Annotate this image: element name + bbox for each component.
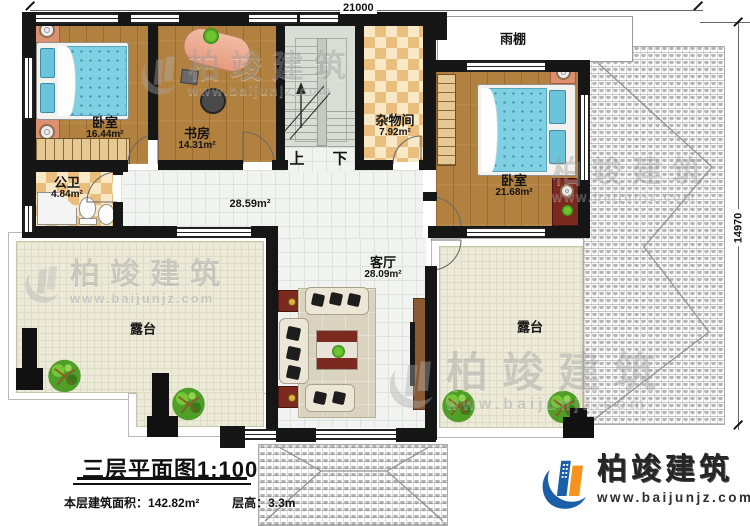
stair-treads-left-flight	[284, 44, 317, 110]
room-label-bedroom1: 卧室 16.44m²	[86, 116, 123, 140]
room-area: 7.92m²	[375, 128, 414, 139]
room-area: 16.44m²	[86, 130, 123, 141]
window	[245, 429, 276, 440]
wall-stub	[423, 192, 437, 201]
window	[36, 13, 118, 24]
terrace-right-label: 露台	[517, 317, 543, 336]
monitor-icon	[180, 69, 199, 85]
roof-right	[583, 46, 725, 425]
roof-right-ridge-lines	[584, 47, 726, 426]
knob-icon	[288, 394, 296, 402]
window	[177, 227, 251, 238]
floor-height-value: 3.3m	[268, 496, 295, 510]
stair-stringer	[317, 38, 327, 146]
brand-logo: 柏竣建筑 www.baijunjz.com	[541, 455, 750, 513]
wall-spine-c	[272, 160, 288, 170]
wall-living-bottom-2	[396, 428, 436, 442]
window	[131, 13, 179, 24]
room-label-study: 书房 14.31m²	[178, 127, 215, 151]
cushion	[286, 346, 301, 361]
wall-bathroom-stub	[113, 170, 123, 175]
stair-down-label: 下	[332, 148, 347, 169]
stair-up-label: 上	[289, 148, 304, 169]
window	[316, 429, 396, 440]
sofa-bottom	[305, 384, 355, 412]
room-label-living: 客厅 28.09m²	[364, 256, 401, 280]
plant-icon	[332, 345, 345, 358]
room-label-bedroom2: 卧室 21.68m²	[495, 174, 532, 198]
brand-url: www.baijunjz.com	[597, 490, 750, 505]
floor-area-value: 142.82m²	[148, 496, 199, 510]
room-name: 卧室	[495, 174, 532, 188]
room-name: 卧室	[86, 116, 123, 130]
room-area: 14.31m²	[178, 141, 215, 152]
pillow	[40, 48, 55, 78]
roof-bottom-ridge-lines	[259, 445, 449, 526]
wall-bedroom1-study	[148, 12, 158, 140]
window	[579, 95, 590, 180]
room-area: 4.84m²	[51, 190, 83, 201]
pillow	[40, 83, 55, 113]
plant-icon	[203, 28, 219, 44]
tree-icon	[440, 388, 477, 424]
cushion	[311, 293, 325, 307]
tv-icon	[410, 322, 415, 386]
room-name: 公卫	[51, 176, 83, 190]
wall-bathroom-bottom	[22, 226, 121, 238]
dimension-right-value: 14970	[732, 210, 744, 247]
toilet-icon	[79, 197, 96, 219]
cushion	[313, 391, 327, 405]
cushion	[347, 293, 361, 307]
room-area: 21.68m²	[495, 188, 532, 199]
pillow	[549, 130, 566, 164]
window	[467, 227, 545, 238]
dimension-ext-line	[700, 22, 750, 23]
dresser	[552, 178, 580, 226]
sofa-top	[305, 287, 369, 315]
column	[570, 408, 587, 420]
coffee-table	[316, 330, 358, 370]
cushion	[286, 365, 301, 380]
column	[147, 416, 178, 437]
wall-study-stair	[276, 12, 285, 170]
floor-stats: 本层建筑面积：142.82m² 层高：3.3m	[64, 494, 295, 511]
canopy-label: 雨棚	[500, 29, 526, 48]
room-name: 杂物间	[375, 114, 414, 128]
wall-hall-terrace	[121, 226, 177, 238]
wall-living-right	[425, 266, 437, 440]
toilet-tank	[79, 218, 97, 225]
wall-spine-e	[419, 160, 436, 170]
rain-canopy	[437, 16, 633, 62]
window	[23, 58, 34, 118]
column	[16, 368, 43, 390]
wall-living-left	[266, 226, 278, 438]
cushion	[332, 391, 346, 405]
closet-bedroom2	[437, 74, 456, 166]
cushion	[286, 326, 301, 341]
terrace-left-label: 露台	[130, 319, 156, 338]
table-runner	[317, 331, 357, 342]
dimension-top-value: 21000	[340, 2, 377, 14]
floor-plan-canvas: 卧室 16.44m² 书房 14.31m² 杂物间 7.92m² 卧室 21.6…	[0, 0, 750, 526]
storage-floor	[364, 26, 423, 162]
hall-area-label: 28.59m²	[230, 199, 271, 211]
wall-corner-block	[220, 426, 245, 448]
wall-spine-b	[158, 160, 243, 170]
roof-bottom	[258, 444, 448, 526]
office-chair	[200, 88, 226, 114]
wall-stair-storage	[355, 12, 364, 170]
table-runner	[317, 358, 357, 369]
pillow	[549, 90, 566, 124]
window	[300, 13, 338, 24]
cushion	[329, 292, 343, 306]
wall-left	[22, 12, 36, 238]
knob-icon	[288, 298, 296, 306]
column	[563, 417, 594, 438]
wall-storage-right	[423, 12, 436, 168]
floor-area-label: 本层建筑面积：	[64, 496, 148, 510]
title-underline-2	[73, 483, 251, 485]
room-name: 客厅	[364, 256, 401, 270]
room-name: 书房	[178, 127, 215, 141]
window	[467, 61, 545, 72]
wall-living-bottom-1	[276, 428, 316, 442]
room-area: 28.59m²	[230, 199, 271, 211]
plant-icon	[562, 205, 573, 216]
floor-height-label: 层高：	[232, 496, 268, 510]
window	[249, 13, 297, 24]
lamp-icon	[560, 184, 574, 198]
sofa-left	[279, 318, 309, 384]
column	[22, 328, 37, 372]
tree-icon	[46, 358, 83, 394]
brand-logo-icon	[541, 455, 589, 513]
room-label-storage: 杂物间 7.92m²	[375, 114, 414, 138]
brand-name: 柏竣建筑	[597, 455, 750, 485]
room-label-bathroom: 公卫 4.84m²	[51, 176, 83, 200]
title-underline	[77, 477, 247, 480]
window	[23, 206, 34, 232]
wall-spine-d	[355, 160, 393, 170]
room-area: 28.09m²	[364, 270, 401, 281]
column	[152, 373, 169, 419]
